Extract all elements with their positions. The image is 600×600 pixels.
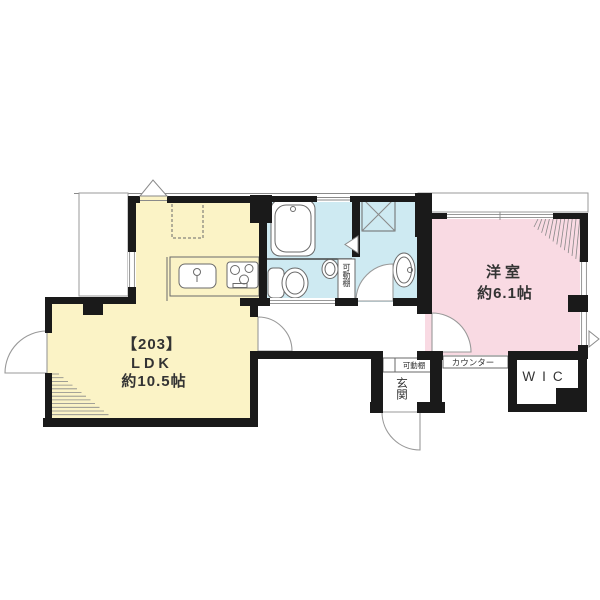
door-swing-ldk xyxy=(258,317,292,351)
window-bath-top xyxy=(317,196,350,202)
room-ldk-upper xyxy=(128,196,263,305)
ldk-label: LDK xyxy=(131,356,173,372)
entrance-label: 玄関 xyxy=(395,376,408,400)
vanity-basin xyxy=(393,253,415,287)
western-room-size-label: 約6.1帖 xyxy=(477,284,533,302)
unit-number-label: 【203】 xyxy=(122,335,182,353)
door-swing-entrance xyxy=(382,412,420,450)
sliding-door-toilet xyxy=(270,298,335,306)
bathtub xyxy=(271,200,315,256)
kitchen-sink xyxy=(179,264,216,288)
floor-plan-page: 【203】 LDK 約10.5帖 洋室 約6.1帖 WIC 玄関 可動棚 可動棚… xyxy=(0,0,600,600)
hand-basin xyxy=(322,260,338,279)
vent-triangle-top xyxy=(140,180,167,196)
stove xyxy=(227,262,258,288)
door-swing-ldk-side xyxy=(5,331,47,373)
movable-shelf-bath-label: 可動棚 xyxy=(342,263,351,288)
floor-plan-drawing: 【203】 LDK 約10.5帖 洋室 約6.1帖 WIC 玄関 可動棚 可動棚… xyxy=(0,0,600,600)
western-room-label: 洋室 xyxy=(486,263,524,281)
ldk-size-label: 約10.5帖 xyxy=(121,372,186,390)
vent-triangle-right xyxy=(589,331,599,347)
counter-label: カウンター xyxy=(452,358,495,368)
toilet xyxy=(268,268,308,298)
wic-label: WIC xyxy=(522,369,569,384)
balcony-top-right xyxy=(418,193,588,212)
movable-shelf-entrance-label: 可動棚 xyxy=(403,360,426,370)
balcony-left xyxy=(79,193,128,296)
